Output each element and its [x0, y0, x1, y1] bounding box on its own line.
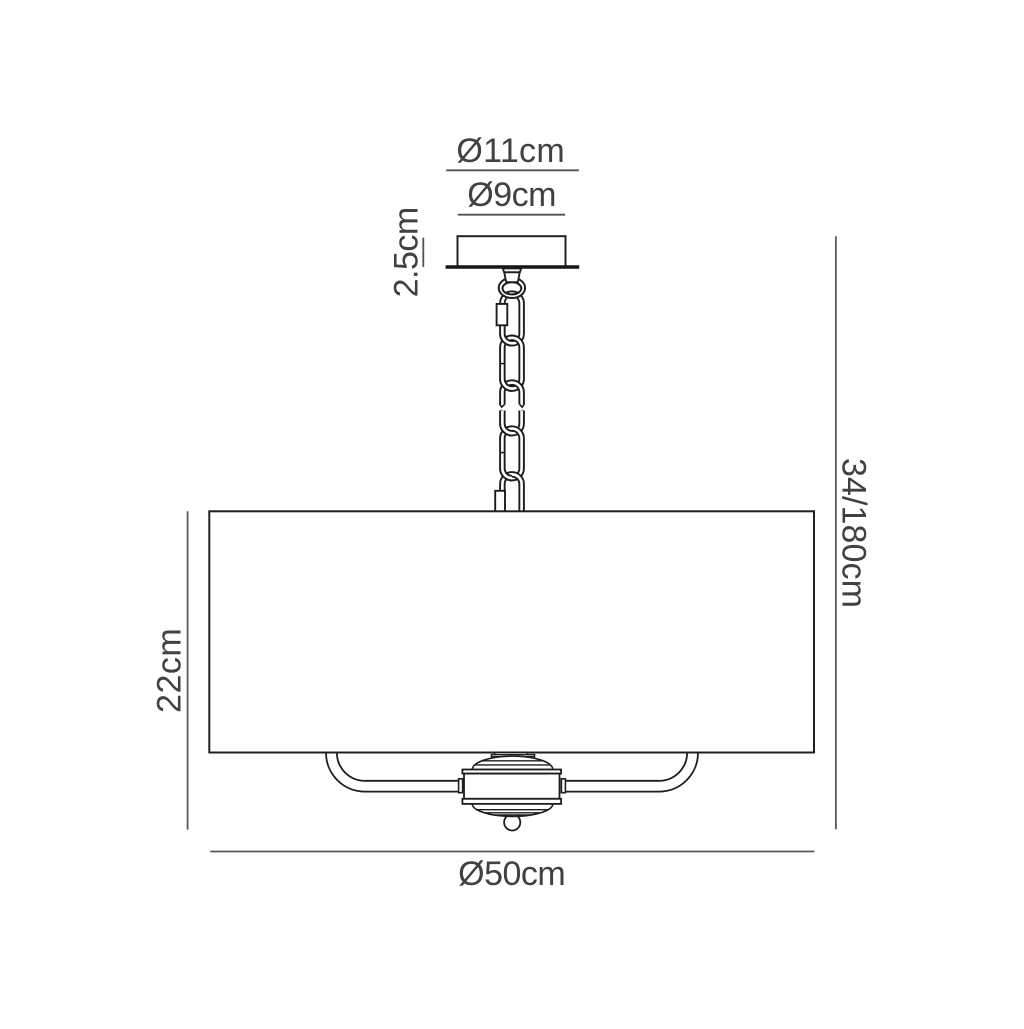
- svg-text:Ø9cm: Ø9cm: [467, 176, 556, 214]
- svg-text:Ø50cm: Ø50cm: [458, 855, 565, 893]
- svg-text:22cm: 22cm: [151, 628, 189, 713]
- svg-text:34/180cm: 34/180cm: [835, 458, 873, 608]
- svg-text:2.5cm: 2.5cm: [388, 207, 426, 297]
- svg-text:Ø11cm: Ø11cm: [456, 132, 565, 170]
